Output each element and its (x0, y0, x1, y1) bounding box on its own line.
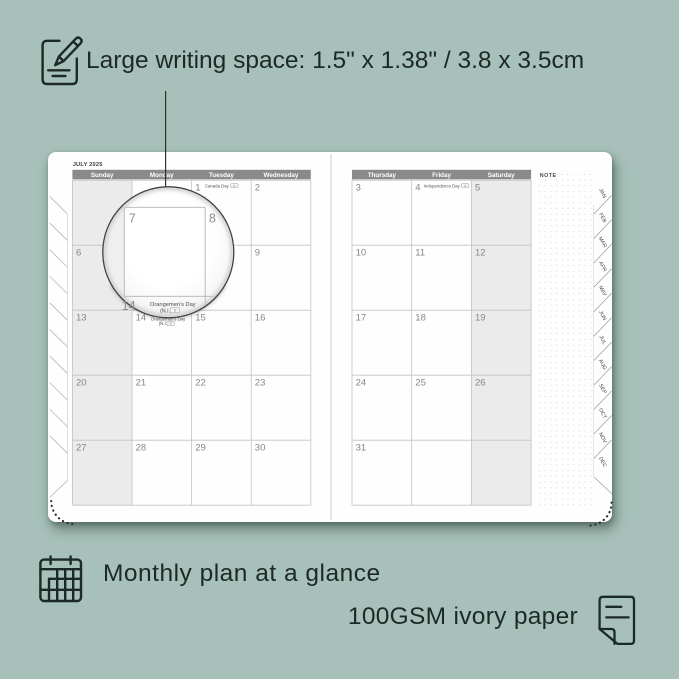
svg-text:NOTE: NOTE (540, 173, 557, 179)
svg-text:Wednesday: Wednesday (264, 172, 299, 179)
svg-text:4: 4 (415, 182, 420, 193)
svg-text:2: 2 (255, 182, 260, 193)
svg-text:31: 31 (356, 442, 367, 453)
svg-text:18: 18 (415, 312, 426, 323)
svg-text:14: 14 (122, 299, 136, 313)
svg-text:Thursday: Thursday (368, 172, 397, 179)
svg-text:NOV: NOV (597, 432, 608, 445)
svg-text:9: 9 (255, 247, 260, 258)
svg-text:20: 20 (76, 377, 87, 388)
svg-text:FEB: FEB (597, 212, 607, 224)
svg-text:11: 11 (415, 247, 425, 258)
svg-text:JUN: JUN (597, 310, 607, 322)
svg-text:15: 15 (195, 312, 206, 323)
svg-text:Sunday: Sunday (91, 172, 114, 179)
svg-text:Monday: Monday (150, 172, 174, 179)
svg-text:22: 22 (195, 377, 206, 388)
svg-text:23: 23 (255, 377, 266, 388)
svg-text:13: 13 (76, 312, 87, 323)
svg-text:26: 26 (475, 377, 486, 388)
svg-text:8: 8 (209, 212, 216, 226)
svg-text:APR: APR (597, 261, 607, 273)
svg-text:27: 27 (76, 442, 87, 453)
svg-text:24: 24 (356, 377, 367, 388)
svg-text:10: 10 (356, 247, 367, 258)
svg-text:Friday: Friday (432, 172, 451, 179)
svg-text:1: 1 (195, 182, 200, 193)
svg-text:12: 12 (475, 247, 486, 258)
svg-text:SEP: SEP (597, 383, 607, 395)
svg-text:28: 28 (136, 442, 147, 453)
svg-text:AUG: AUG (597, 358, 608, 371)
svg-text:Independence Day: Independence Day (424, 184, 461, 189)
svg-text:x: x (170, 322, 172, 326)
svg-text:25: 25 (415, 377, 426, 388)
svg-text:16: 16 (255, 312, 266, 323)
svg-text:7: 7 (129, 212, 136, 226)
svg-text:30: 30 (255, 442, 266, 453)
svg-text:21: 21 (136, 377, 147, 388)
svg-text:x: x (233, 184, 235, 188)
svg-text:29: 29 (195, 442, 206, 453)
svg-text:JUL: JUL (597, 335, 607, 346)
svg-text:19: 19 (475, 312, 486, 323)
svg-text:17: 17 (356, 312, 367, 323)
svg-text:x: x (464, 184, 466, 188)
svg-text:JULY 2025: JULY 2025 (73, 162, 103, 168)
svg-text:Tuesday: Tuesday (209, 172, 235, 179)
svg-text:MAR: MAR (597, 236, 608, 249)
svg-text:Canada Day: Canada Day (205, 184, 230, 189)
svg-text:Saturday: Saturday (488, 172, 515, 179)
svg-text:5: 5 (475, 182, 480, 193)
svg-text:JAN: JAN (597, 188, 607, 200)
svg-text:6: 6 (76, 247, 81, 258)
svg-text:DEC: DEC (597, 456, 608, 469)
svg-text:Orangemen’s Day: Orangemen’s Day (150, 302, 196, 308)
svg-text:MAY: MAY (597, 285, 608, 298)
svg-text:3: 3 (356, 182, 361, 193)
svg-text:OCT: OCT (597, 407, 608, 420)
